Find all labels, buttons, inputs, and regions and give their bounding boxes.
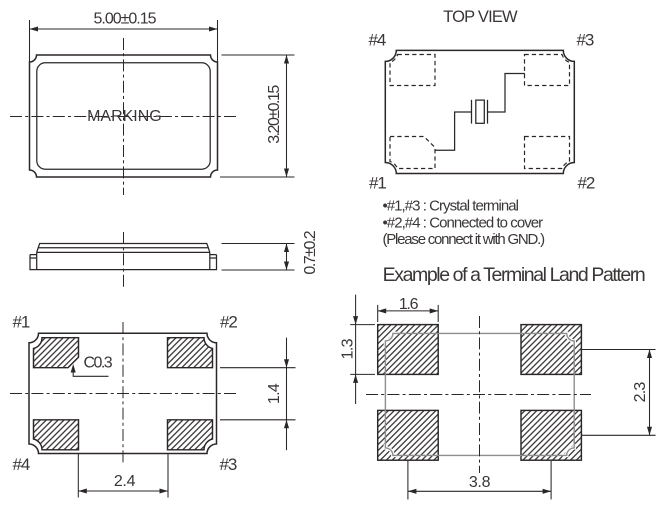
svg-text:•#2,#4 : Connected to cover: •#2,#4 : Connected to cover	[383, 215, 544, 232]
svg-text:MARKING: MARKING	[87, 108, 162, 125]
svg-text:C0.3: C0.3	[84, 355, 113, 372]
svg-text:2.3: 2.3	[632, 382, 649, 403]
svg-text:(Please connect it with GND.): (Please connect it with GND.)	[383, 231, 546, 248]
svg-text:#3: #3	[220, 455, 237, 474]
svg-text:#1: #1	[369, 174, 386, 193]
svg-text:5.00±0.15: 5.00±0.15	[93, 11, 156, 28]
svg-text:2.4: 2.4	[114, 473, 136, 490]
svg-text:3.8: 3.8	[469, 474, 491, 491]
svg-text:Example of a Terminal Land Pat: Example of a Terminal Land Pattern	[383, 264, 645, 286]
svg-text:0.7±0.2: 0.7±0.2	[302, 230, 319, 274]
svg-text:#4: #4	[13, 455, 30, 474]
svg-text:#1: #1	[13, 313, 30, 332]
svg-text:1.4: 1.4	[266, 383, 283, 404]
svg-text:#2: #2	[578, 174, 595, 193]
svg-text:TOP VIEW: TOP VIEW	[443, 8, 518, 26]
svg-text:1.3: 1.3	[340, 338, 357, 359]
svg-text:3.20±0.15: 3.20±0.15	[266, 85, 283, 144]
svg-text:•#1,#3 : Crystal terminal: •#1,#3 : Crystal terminal	[383, 198, 519, 215]
svg-text:1.6: 1.6	[399, 296, 419, 313]
svg-text:#2: #2	[220, 313, 237, 332]
svg-text:#4: #4	[369, 31, 386, 50]
svg-text:#3: #3	[577, 31, 594, 50]
